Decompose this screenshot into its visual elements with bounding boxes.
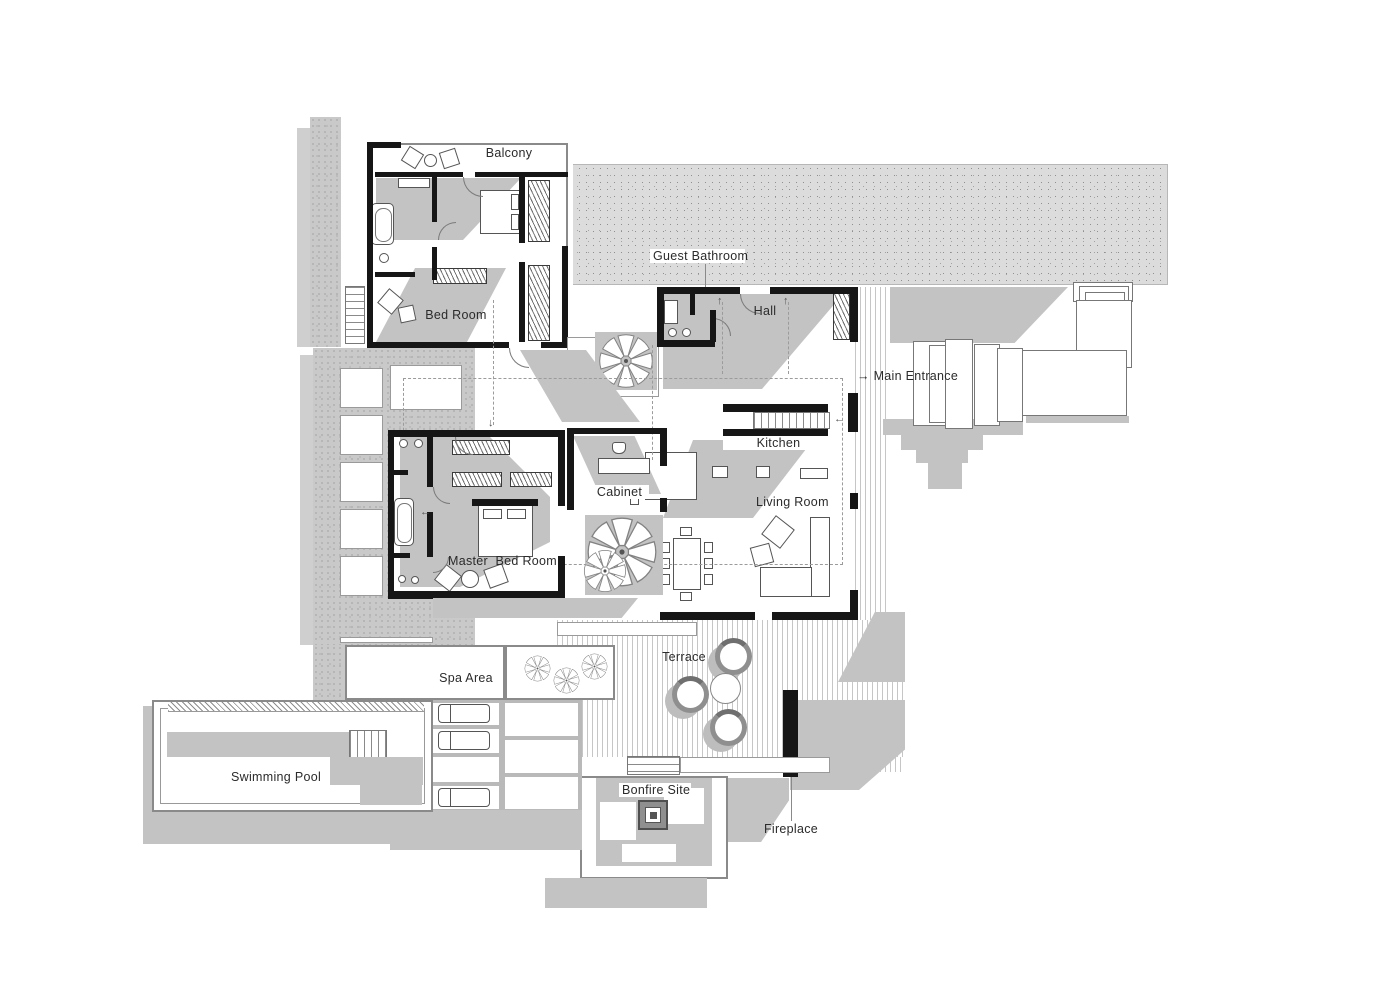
bonfire-paving-white — [600, 802, 636, 840]
chair-icon — [704, 574, 713, 585]
pool-edge-hatch — [168, 702, 424, 712]
wall — [657, 340, 715, 347]
label-guest-bathroom: Guest Bathroom — [650, 249, 745, 263]
wall — [367, 142, 373, 348]
wardrobe-icon — [528, 180, 550, 242]
label-main-entrance: → Main Entrance — [857, 369, 958, 383]
label-terrace: Terrace — [660, 650, 708, 664]
label-bonfire-site: Bonfire Site — [619, 783, 691, 797]
wall — [770, 287, 858, 294]
wall — [375, 272, 415, 277]
sink-icon — [399, 439, 408, 448]
spa-cell — [505, 777, 578, 809]
guide-dashed — [788, 302, 790, 374]
wardrobe-icon — [452, 472, 502, 487]
vanity-icon — [664, 300, 678, 324]
label-cabinet: Cabinet — [590, 485, 649, 499]
lounger-icon — [438, 731, 490, 750]
bathtub-basin — [397, 503, 412, 543]
stairs-icon — [627, 756, 680, 775]
balcony-railing — [399, 143, 568, 145]
pillow-icon — [507, 509, 526, 519]
planter-pillar — [313, 645, 345, 702]
shadow — [928, 463, 962, 489]
bed-headboard — [472, 499, 538, 506]
shadow — [143, 706, 152, 816]
wall — [388, 430, 565, 437]
sofa-icon — [760, 567, 812, 597]
guide-dashed — [722, 302, 724, 374]
shadow — [901, 435, 983, 450]
shadow — [143, 812, 444, 844]
lounger-pillow-line — [450, 789, 451, 806]
leader-line — [791, 777, 792, 821]
tree-icon — [524, 655, 551, 682]
label-swimming-pool: Swimming Pool — [231, 770, 321, 784]
wall — [710, 310, 716, 342]
pool-water — [360, 785, 422, 805]
chair-icon — [461, 570, 479, 588]
wall — [850, 493, 858, 509]
wall — [558, 556, 565, 599]
chair-icon — [398, 305, 417, 324]
wall — [690, 287, 695, 315]
wardrobe-icon — [433, 268, 487, 284]
wall — [432, 177, 437, 222]
arrow-right-icon: → — [857, 369, 870, 383]
tree-icon — [581, 653, 608, 680]
wall — [427, 437, 433, 487]
plant-pot-icon — [710, 709, 747, 746]
shadow — [916, 450, 968, 463]
leader-line — [705, 264, 706, 287]
arrow-up-icon: ↑ — [717, 296, 723, 307]
lounger-icon — [438, 704, 490, 723]
label-living-room: Living Room — [756, 495, 826, 509]
wall — [558, 430, 565, 506]
planter-box — [340, 556, 383, 596]
terrace-platform — [680, 757, 830, 773]
desk-chair-icon — [612, 442, 626, 454]
roof-canopy — [568, 164, 1168, 285]
closet-icon — [833, 293, 850, 340]
label-master-bed-room: Master Bed Room — [448, 554, 548, 568]
wall — [567, 428, 574, 510]
planter-box — [340, 462, 383, 502]
desk-icon — [598, 458, 650, 474]
wall — [657, 287, 664, 345]
bathtub-basin — [375, 208, 392, 242]
lounger-pillow-line — [450, 705, 451, 722]
chair-icon — [680, 592, 692, 601]
guide-dashed — [493, 300, 495, 425]
wall — [850, 287, 858, 342]
roof-shadow — [890, 287, 1068, 343]
bidet-icon — [682, 328, 691, 337]
pool-water — [330, 757, 423, 785]
wall — [388, 470, 408, 475]
strip-shadow — [297, 128, 310, 347]
sink-icon — [414, 439, 423, 448]
label-balcony: Balcony — [477, 146, 541, 160]
toilet-icon — [668, 328, 677, 337]
label-fireplace: Fireplace — [761, 822, 821, 836]
plant-pot-icon — [715, 638, 752, 675]
bidet-icon — [411, 576, 419, 584]
arrow-left-icon: ← — [834, 414, 845, 425]
pillow-icon — [483, 509, 502, 519]
wall — [657, 287, 740, 294]
wall — [660, 428, 667, 466]
side-table-icon — [710, 673, 741, 704]
shadow — [545, 878, 707, 908]
wardrobe-icon — [528, 265, 550, 341]
tree-icon — [553, 667, 580, 694]
wall — [848, 393, 858, 432]
wall — [567, 428, 665, 434]
strip-shadow — [300, 355, 313, 645]
entry-step-slab — [997, 348, 1023, 422]
lounger-icon — [438, 788, 490, 807]
planter-box — [340, 415, 383, 455]
bonfire-pit-core — [650, 812, 657, 819]
floor-plan: Kitchen ↑ ↑ ↓ ← — [0, 0, 1400, 990]
wall — [772, 612, 858, 620]
wall — [388, 591, 565, 599]
wall — [519, 177, 525, 243]
pool-stairs-icon — [349, 730, 387, 759]
tree-icon — [583, 549, 627, 593]
label-hall: Hall — [745, 304, 785, 318]
toilet-icon — [379, 253, 389, 263]
wardrobe-icon — [510, 472, 552, 487]
entry-step-slab — [1022, 350, 1127, 416]
shadow — [433, 598, 638, 618]
balcony-railing — [566, 143, 568, 247]
step — [557, 622, 697, 636]
wall — [660, 612, 755, 620]
planter-box — [340, 509, 383, 549]
arrow-down-icon: ↓ — [488, 418, 494, 429]
stairs-icon — [345, 286, 365, 344]
entry-step-slab — [945, 339, 973, 429]
plant-pot-icon — [672, 676, 709, 713]
guide-dashed — [652, 345, 654, 460]
shadow — [790, 700, 905, 790]
bonfire-paving-white — [622, 844, 676, 862]
wall — [427, 512, 433, 557]
label-spa-area: Spa Area — [438, 671, 494, 685]
wall — [367, 342, 509, 348]
wall — [562, 246, 568, 348]
shadow — [1026, 416, 1129, 423]
wall — [519, 262, 525, 342]
wall — [375, 172, 463, 177]
lounger-pillow-line — [450, 732, 451, 749]
arrow-left-icon: ← — [420, 507, 431, 518]
toilet-icon — [398, 575, 406, 583]
planter-box — [340, 368, 383, 408]
wall — [660, 498, 667, 512]
wall — [388, 553, 410, 558]
vanity-icon — [398, 178, 430, 188]
step — [340, 637, 433, 643]
pool-water — [167, 732, 349, 757]
table-icon — [424, 154, 437, 167]
entrance-walkway-deck — [855, 287, 890, 620]
spa-cell — [505, 740, 578, 773]
spa-cell — [505, 703, 578, 736]
wall — [432, 247, 437, 280]
pillow-icon — [511, 214, 519, 230]
label-bed-room: Bed Room — [425, 308, 487, 322]
pillow-icon — [511, 194, 519, 210]
planter-strip-north — [310, 117, 341, 347]
wall — [388, 430, 394, 598]
spa-cell — [432, 757, 499, 782]
